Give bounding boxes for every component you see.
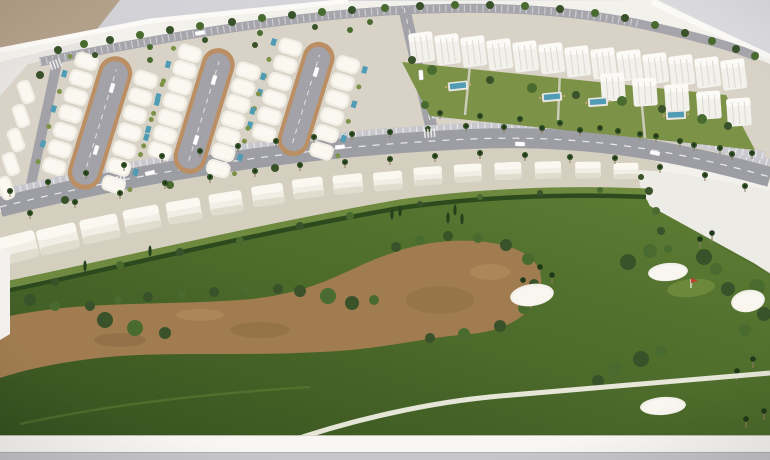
- architectural-model-photo: [0, 0, 770, 460]
- photo-stage: [0, 0, 770, 460]
- photo-vignette: [0, 0, 770, 460]
